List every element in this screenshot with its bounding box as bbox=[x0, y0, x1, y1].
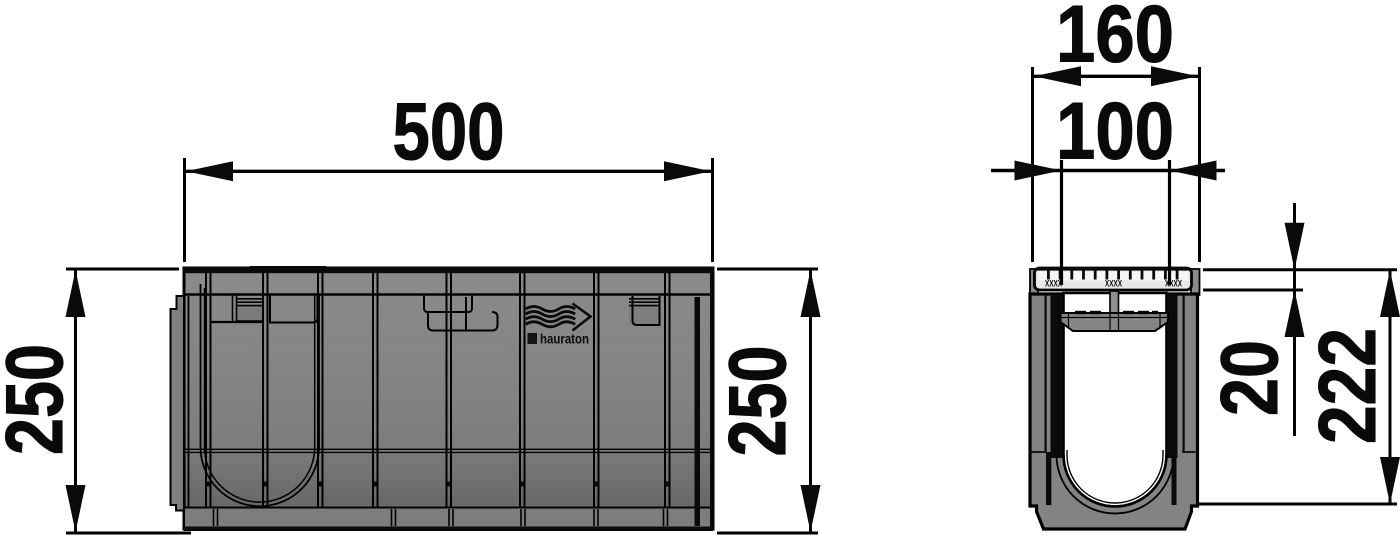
svg-text:XXXX: XXXX bbox=[1165, 279, 1182, 289]
svg-text:20: 20 bbox=[1205, 340, 1295, 416]
svg-text:XXXX: XXXX bbox=[1105, 279, 1122, 289]
svg-text:500: 500 bbox=[393, 87, 505, 177]
svg-text:XXXX: XXXX bbox=[1045, 279, 1062, 289]
svg-text:250: 250 bbox=[0, 344, 80, 455]
svg-text:hauraton: hauraton bbox=[540, 332, 589, 347]
svg-text:160: 160 bbox=[1056, 0, 1174, 80]
svg-text:250: 250 bbox=[713, 346, 803, 457]
svg-text:222: 222 bbox=[1303, 328, 1393, 444]
svg-text:100: 100 bbox=[1056, 87, 1174, 177]
